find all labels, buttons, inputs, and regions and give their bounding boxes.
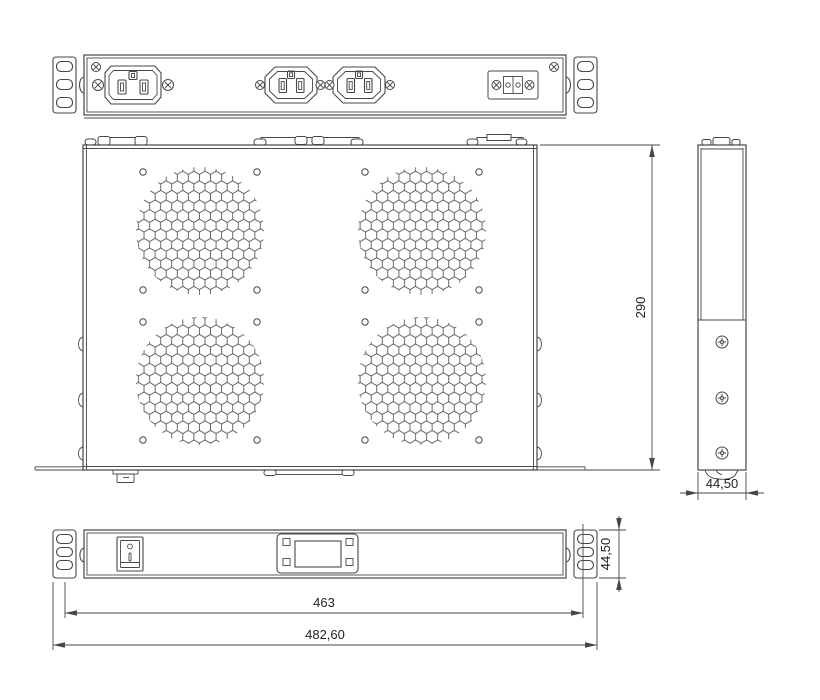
ear-slot (57, 62, 73, 72)
rear-left-pin (80, 77, 85, 93)
side-top-tabs (702, 138, 740, 146)
fan-grille-2 (358, 167, 486, 295)
dimension-side-width-label: 44,50 (706, 476, 739, 491)
top-view (35, 135, 585, 483)
terminal-block (488, 71, 538, 99)
connector-screw-icon (325, 81, 334, 90)
rear-right-rack-ear (574, 57, 597, 113)
rear-edge-tabs (85, 135, 527, 146)
front-left-rack-ear (53, 530, 76, 578)
front-left-pin (80, 548, 84, 562)
fan-mount-hole (140, 287, 146, 293)
dimension-panel-height-label: 44,50 (598, 538, 613, 571)
ear-slot (578, 548, 594, 557)
dimension-panel-height: 44,50 (598, 516, 626, 592)
connector-screw-icon (256, 81, 265, 90)
rear-left-rack-ear (53, 57, 76, 113)
ear-slot (57, 561, 73, 570)
fan-grille-4 (358, 317, 486, 445)
rear-view (53, 55, 597, 118)
ear-slot (578, 561, 594, 570)
fan-mount-hole (362, 169, 368, 175)
ear-slot (57, 548, 73, 557)
fan-mount-hole (254, 287, 260, 293)
drawing-canvas: 290 44,50 44,50 463 482,60 (0, 0, 820, 700)
panel-screw-icon (92, 63, 101, 72)
front-view (53, 530, 597, 578)
fan-grille-1 (136, 167, 264, 295)
side-view (698, 138, 746, 480)
technical-drawing: 290 44,50 44,50 463 482,60 (0, 0, 820, 700)
fan-mount-hole (476, 319, 482, 325)
ear-slot (578, 80, 594, 90)
connector-screw-icon (316, 81, 325, 90)
fan-mount-hole (254, 319, 260, 325)
connector-screw-icon (163, 80, 174, 91)
fan-mount-hole (476, 437, 482, 443)
side-screw-icon (716, 447, 728, 459)
ear-slot (57, 98, 73, 108)
fan-grille-3 (136, 317, 264, 445)
front-right-pin (566, 548, 570, 562)
front-panel-face (84, 530, 566, 578)
dimension-mounting-width-label: 463 (313, 595, 335, 610)
fan-mount-hole (362, 437, 368, 443)
front-right-rack-ear (574, 530, 597, 578)
fan-mount-hole (140, 319, 146, 325)
side-screw-icon (716, 336, 728, 348)
fan-mount-hole (476, 287, 482, 293)
fan-mount-hole (254, 437, 260, 443)
ear-slot (578, 535, 594, 544)
connector-screw-icon (386, 81, 395, 90)
dimension-overall-width-label: 482,60 (305, 627, 345, 642)
connector-screw-icon (492, 81, 501, 90)
ear-slot (578, 98, 594, 108)
fan-mount-hole (362, 287, 368, 293)
ear-slot (57, 535, 73, 544)
ear-slot (57, 80, 73, 90)
panel-screw-icon (550, 63, 559, 72)
ear-slot (578, 62, 594, 72)
fan-mount-hole (140, 437, 146, 443)
front-edge-tabs (113, 470, 354, 483)
connector-screw-icon (93, 80, 104, 91)
side-screw-icon (716, 392, 728, 404)
dimension-depth: 290 (540, 145, 660, 470)
dimension-side-width: 44,50 (680, 472, 764, 500)
dimension-depth-label: 290 (633, 297, 648, 319)
rear-right-pin (566, 77, 571, 93)
side-body (698, 145, 746, 470)
fan-mount-hole (254, 169, 260, 175)
latch-box (117, 474, 134, 483)
fan-mount-hole (476, 169, 482, 175)
fan-mount-hole (140, 169, 146, 175)
connector-screw-icon (525, 81, 534, 90)
dimension-overall-width: 482,60 (53, 582, 597, 650)
fan-mount-hole (362, 319, 368, 325)
